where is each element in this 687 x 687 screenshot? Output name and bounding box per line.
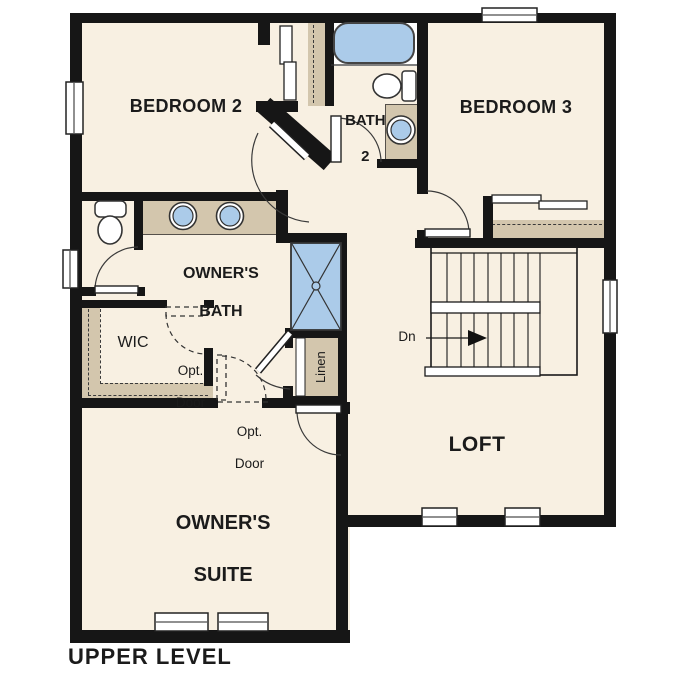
wall-segment bbox=[285, 328, 293, 348]
owners-bath-vanity bbox=[140, 200, 278, 235]
wall-segment bbox=[604, 13, 616, 527]
wall-segment bbox=[258, 13, 270, 45]
room-label-bedroom2: BEDROOM 2 bbox=[100, 97, 272, 117]
wall-segment bbox=[70, 287, 96, 296]
wall-segment bbox=[415, 238, 616, 248]
annotation-opt-door-lower: Opt. Door bbox=[212, 408, 272, 488]
annotation-stairs-down: Dn bbox=[393, 330, 421, 345]
room-label-loft: LOFT bbox=[417, 433, 537, 456]
wall-segment bbox=[70, 13, 82, 643]
wall-segment bbox=[134, 192, 143, 250]
room-label-owners-suite: OWNER'S SUITE bbox=[142, 484, 282, 614]
bath2-vanity bbox=[385, 104, 420, 163]
wall-segment bbox=[336, 410, 348, 643]
room-label-owners-bath: OWNER'S BATH bbox=[152, 245, 272, 340]
closet-rod-dashed bbox=[492, 224, 602, 225]
bedroom2-closet-shelf bbox=[308, 22, 325, 106]
wall-segment bbox=[338, 233, 347, 406]
room-label-bedroom3: BEDROOM 3 bbox=[430, 98, 602, 118]
wall-segment bbox=[336, 515, 616, 527]
annotation-opt-door-upper: Opt. Door bbox=[153, 347, 213, 427]
wall-segment bbox=[70, 192, 284, 201]
bedroom3-closet-shelf bbox=[490, 220, 604, 240]
wall-segment bbox=[278, 233, 347, 243]
wic-shelf-dashed bbox=[100, 309, 101, 384]
room-label-bath2: BATH 2 bbox=[328, 94, 386, 184]
wall-segment bbox=[283, 386, 293, 400]
room-label-wic: WIC bbox=[108, 334, 158, 352]
floor-plan: BEDROOM 2 BATH 2 BEDROOM 3 OWNER'S BATH … bbox=[0, 0, 687, 687]
wall-segment bbox=[70, 630, 350, 643]
wall-segment bbox=[137, 287, 145, 296]
tub-alcove bbox=[331, 22, 417, 66]
wic-shelf-dashed bbox=[88, 309, 89, 395]
room-label-linen: Linen bbox=[314, 337, 328, 397]
closet-rod-dashed bbox=[313, 25, 314, 103]
wall-segment bbox=[417, 168, 428, 194]
wall-segment bbox=[417, 13, 428, 168]
page-title: UPPER LEVEL bbox=[68, 645, 308, 669]
wall-segment bbox=[70, 13, 616, 23]
wall-segment bbox=[483, 196, 493, 242]
